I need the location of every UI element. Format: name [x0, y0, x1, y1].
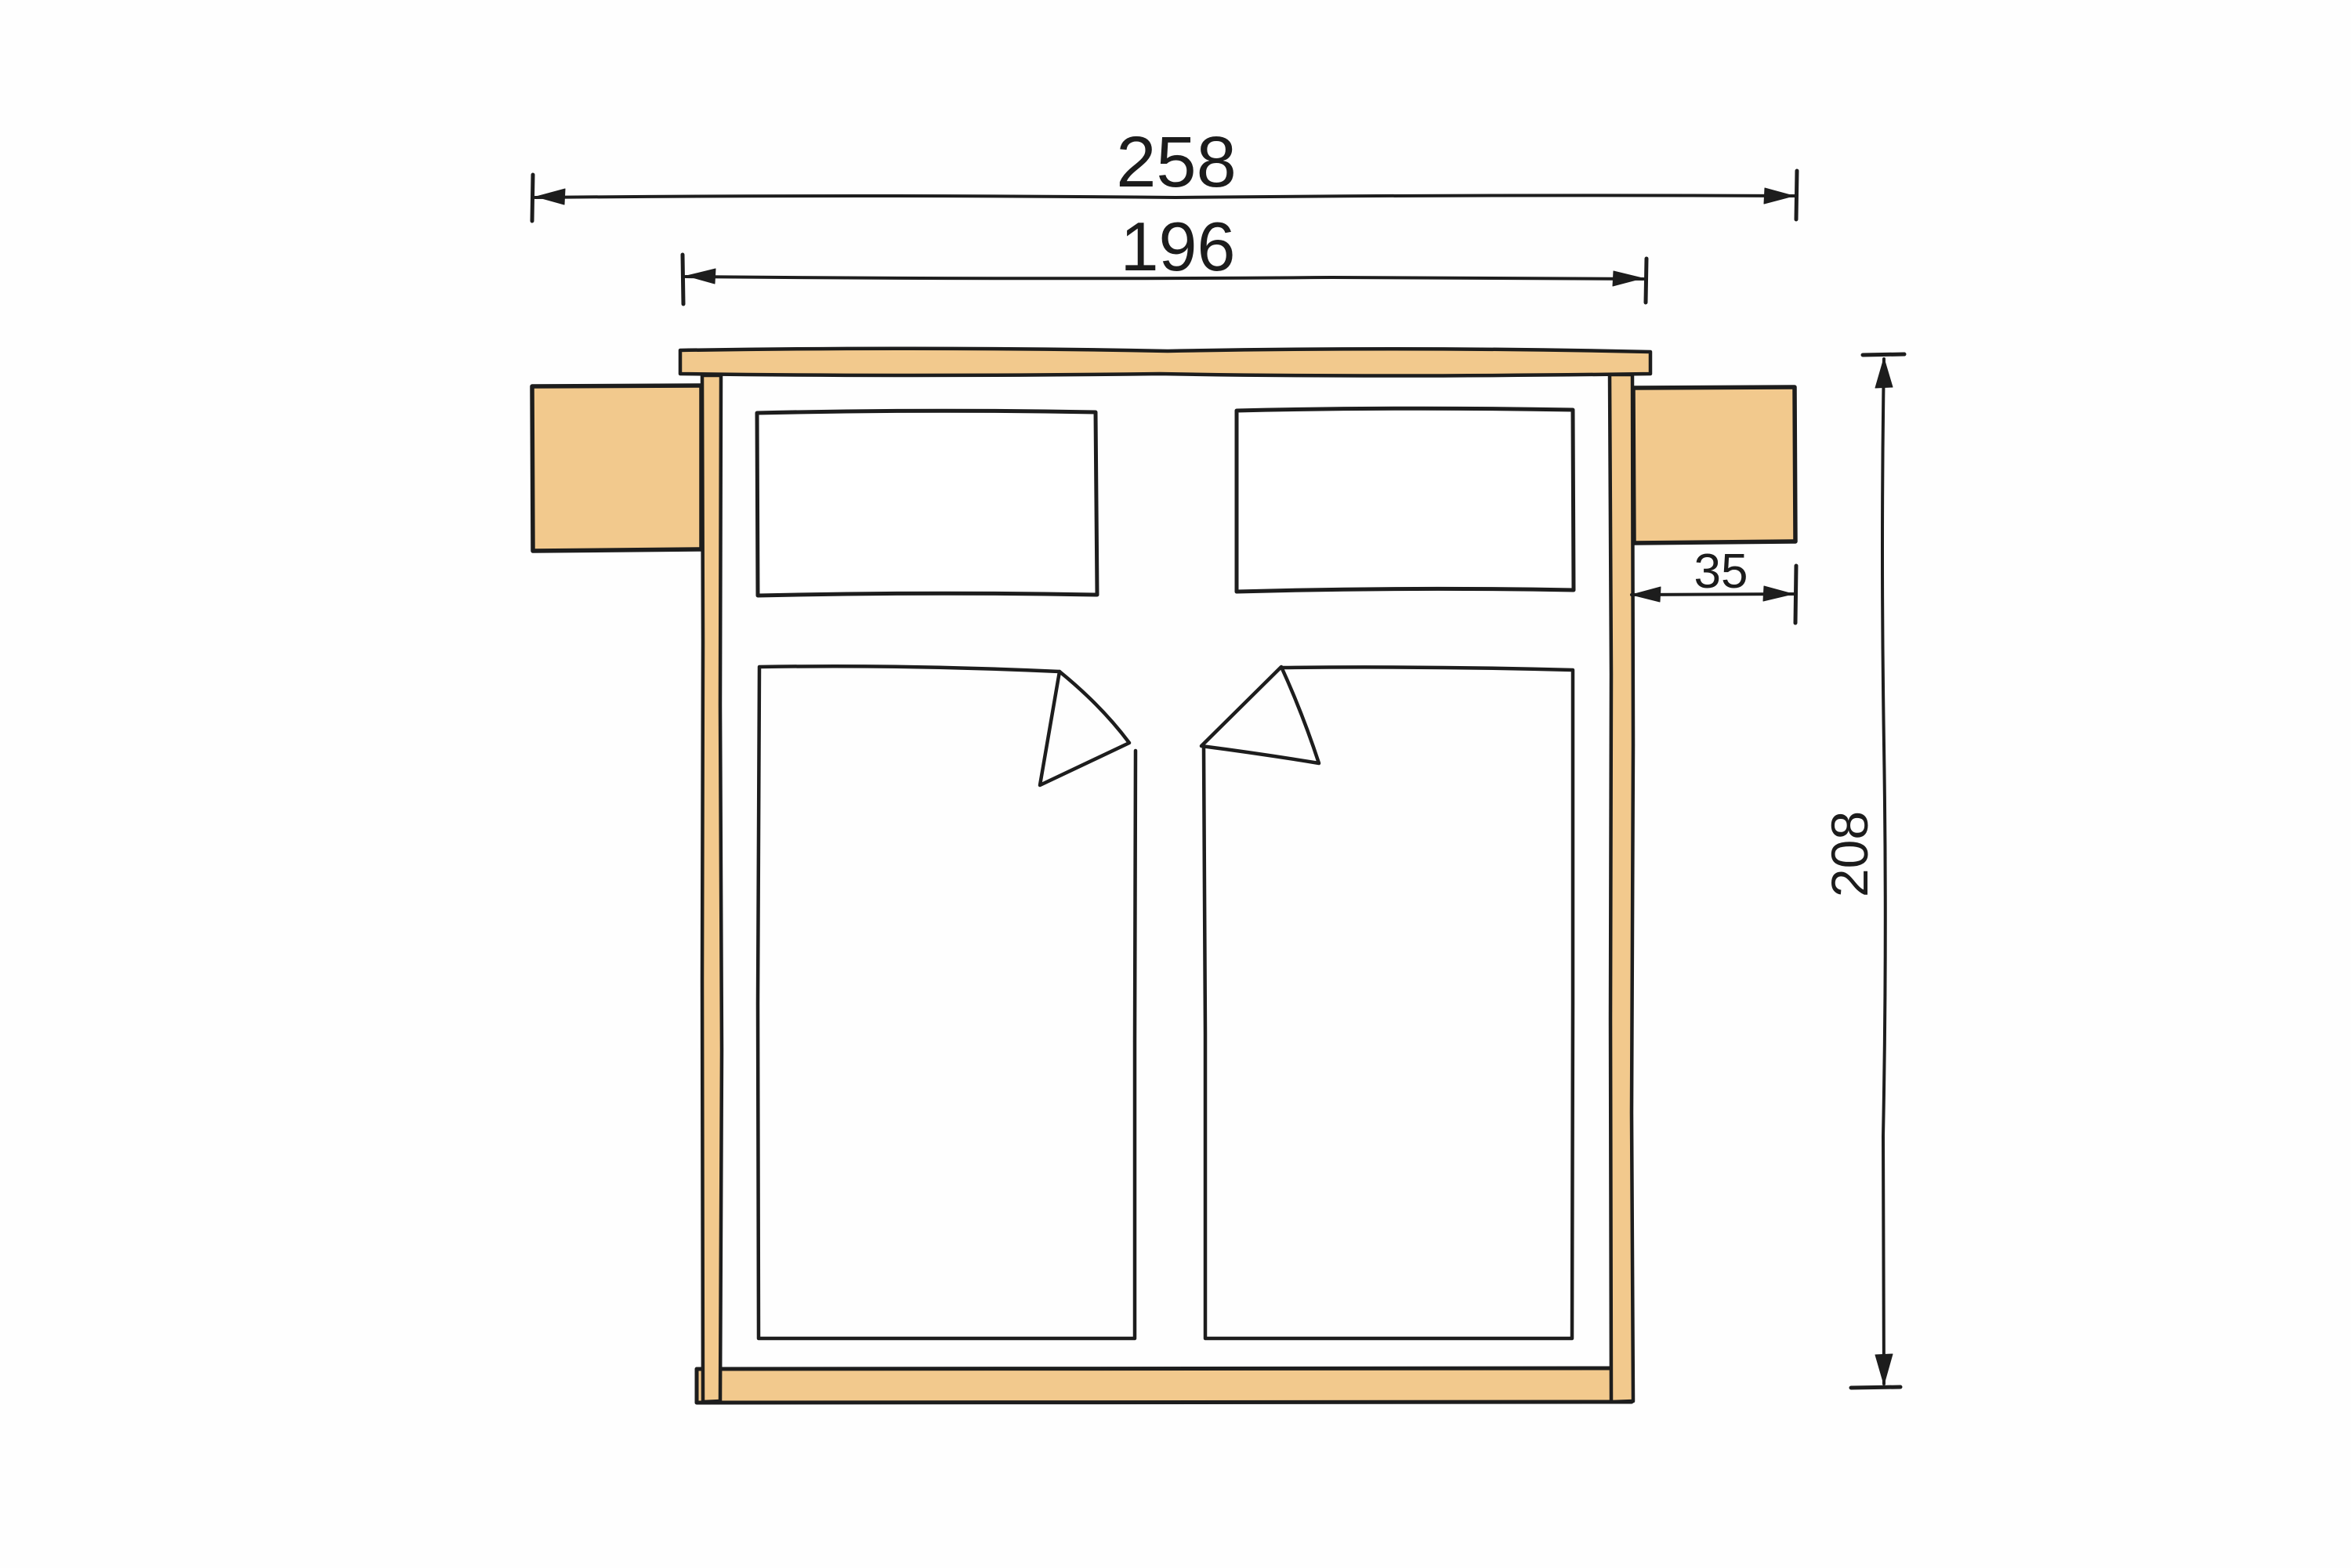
svg-text:35: 35	[1694, 545, 1748, 599]
svg-text:258: 258	[1116, 122, 1237, 202]
svg-text:196: 196	[1121, 208, 1236, 285]
svg-text:208: 208	[1820, 811, 1878, 897]
